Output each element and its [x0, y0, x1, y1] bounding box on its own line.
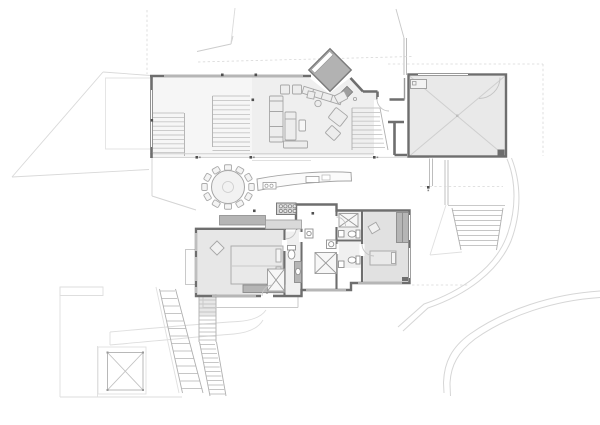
kitchen-counter — [220, 216, 266, 226]
floor-plan-canvas — [0, 0, 600, 425]
dining-table — [212, 171, 245, 204]
balcony — [186, 250, 197, 285]
floor-plan-screenshot — [0, 0, 600, 425]
toilet-bowl — [348, 231, 356, 237]
sofa — [270, 96, 284, 142]
island-cooktop — [306, 177, 319, 183]
pillow — [276, 249, 281, 262]
chaise — [285, 112, 296, 140]
toilet-tank — [356, 256, 360, 264]
bench — [284, 141, 308, 148]
side-table — [307, 91, 315, 99]
laundry-sink — [305, 229, 313, 238]
toilet-bowl — [288, 250, 295, 259]
armchair — [281, 85, 290, 94]
bath-sink — [339, 231, 345, 238]
toilet-tank — [356, 230, 360, 238]
toilet-bowl — [348, 257, 356, 263]
sink-basin — [296, 268, 301, 274]
garage-corner-pier — [498, 150, 505, 157]
toilet-tank — [288, 246, 296, 251]
round-table — [315, 100, 321, 106]
coffee-table — [299, 120, 306, 131]
bath-sink — [339, 261, 345, 268]
armchair — [293, 85, 302, 94]
kitchen-counter-step — [266, 220, 302, 229]
pillow — [392, 253, 396, 264]
